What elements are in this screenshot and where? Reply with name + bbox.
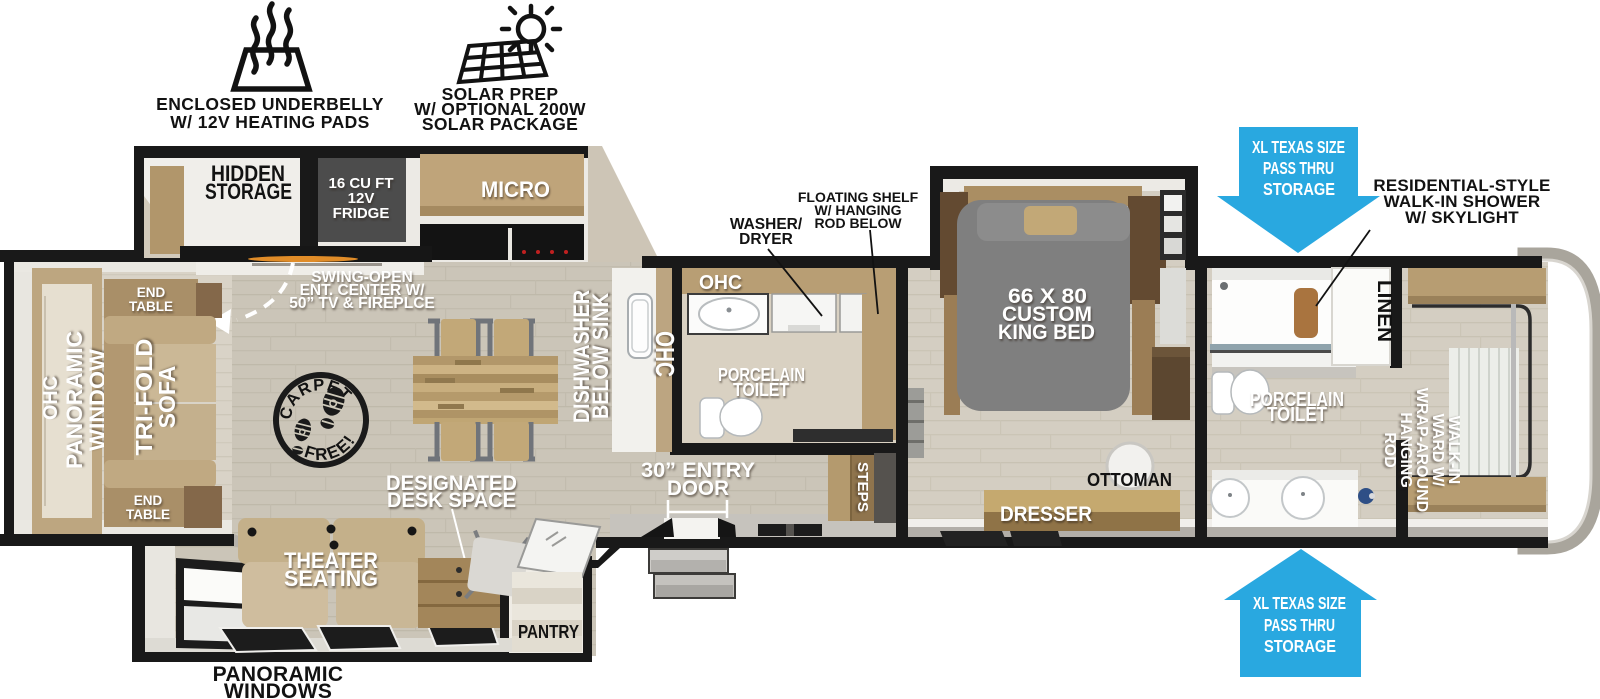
svg-text:ENCLOSED UNDERBELLY: ENCLOSED UNDERBELLY: [156, 94, 384, 114]
svg-text:XL TEXAS SIZE: XL TEXAS SIZE: [1253, 593, 1346, 613]
svg-text:50” TV & FIREPLCE: 50” TV & FIREPLCE: [289, 295, 435, 312]
svg-text:TOILET: TOILET: [1267, 404, 1327, 426]
svg-text:LINEN: LINEN: [1373, 280, 1395, 342]
svg-text:OHC: OHC: [699, 272, 742, 294]
svg-text:PASS THRU: PASS THRU: [1264, 615, 1335, 635]
svg-text:PANORAMIC: PANORAMIC: [62, 331, 87, 469]
svg-text:DRYER: DRYER: [739, 231, 793, 248]
svg-text:ROD BELOW: ROD BELOW: [814, 215, 902, 231]
svg-text:SOFA: SOFA: [154, 366, 180, 429]
svg-text:DRESSER: DRESSER: [1000, 503, 1092, 526]
svg-text:STORAGE: STORAGE: [1264, 636, 1336, 656]
svg-text:STORAGE: STORAGE: [1263, 179, 1335, 199]
svg-text:PANTRY: PANTRY: [518, 622, 579, 642]
svg-text:OTTOMAN: OTTOMAN: [1087, 470, 1172, 490]
svg-text:W/ SKYLIGHT: W/ SKYLIGHT: [1405, 208, 1519, 227]
svg-text:STORAGE: STORAGE: [205, 179, 292, 204]
svg-text:HANGING: HANGING: [1397, 412, 1414, 488]
svg-text:BELOW SINK: BELOW SINK: [588, 293, 613, 419]
svg-text:DOOR: DOOR: [667, 477, 729, 500]
svg-text:OHC: OHC: [40, 376, 62, 420]
svg-text:ROD: ROD: [1381, 432, 1398, 468]
svg-text:END: END: [137, 285, 166, 300]
svg-text:STEPS: STEPS: [854, 462, 871, 512]
svg-text:TABLE: TABLE: [129, 299, 173, 314]
svg-text:WINDOWS: WINDOWS: [224, 680, 332, 699]
svg-text:END: END: [134, 493, 163, 508]
svg-text:XL TEXAS SIZE: XL TEXAS SIZE: [1252, 137, 1345, 157]
svg-text:WARD W/: WARD W/: [1429, 414, 1446, 487]
svg-text:DESK SPACE: DESK SPACE: [387, 489, 516, 512]
svg-text:TABLE: TABLE: [126, 507, 170, 522]
svg-text:OHC: OHC: [650, 331, 680, 377]
svg-text:WRAP-AROUND: WRAP-AROUND: [1413, 388, 1430, 512]
svg-text:FRIDGE: FRIDGE: [333, 205, 390, 222]
svg-text:MICRO: MICRO: [481, 177, 550, 202]
svg-text:SEATING: SEATING: [284, 566, 378, 591]
svg-text:TOILET: TOILET: [733, 380, 789, 400]
svg-text:KING BED: KING BED: [998, 321, 1095, 344]
svg-text:SOLAR PACKAGE: SOLAR PACKAGE: [422, 114, 578, 134]
svg-text:WALK-IN: WALK-IN: [1445, 416, 1462, 484]
svg-text:W/ 12V HEATING PADS: W/ 12V HEATING PADS: [170, 112, 369, 132]
svg-text:PASS THRU: PASS THRU: [1263, 158, 1334, 178]
